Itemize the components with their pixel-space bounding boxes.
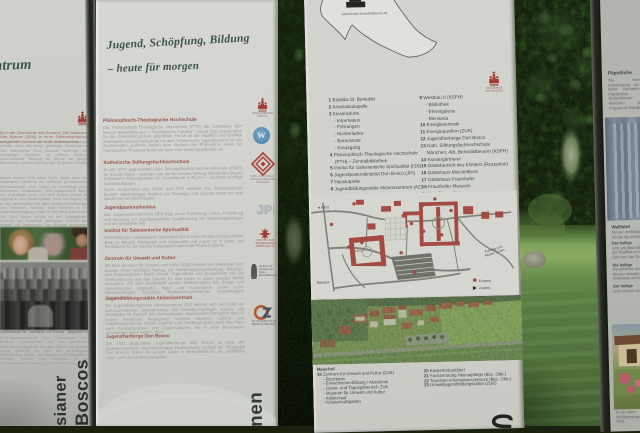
svg-text:Zugang: Zugang — [479, 286, 490, 290]
svg-text:◄ B472: ◄ B472 — [317, 205, 329, 209]
svg-text:Bahnhof: Bahnhof — [317, 280, 330, 284]
svg-text:Maierhof: Maierhof — [352, 249, 364, 253]
svg-text:Eingang: Eingang — [479, 279, 491, 283]
